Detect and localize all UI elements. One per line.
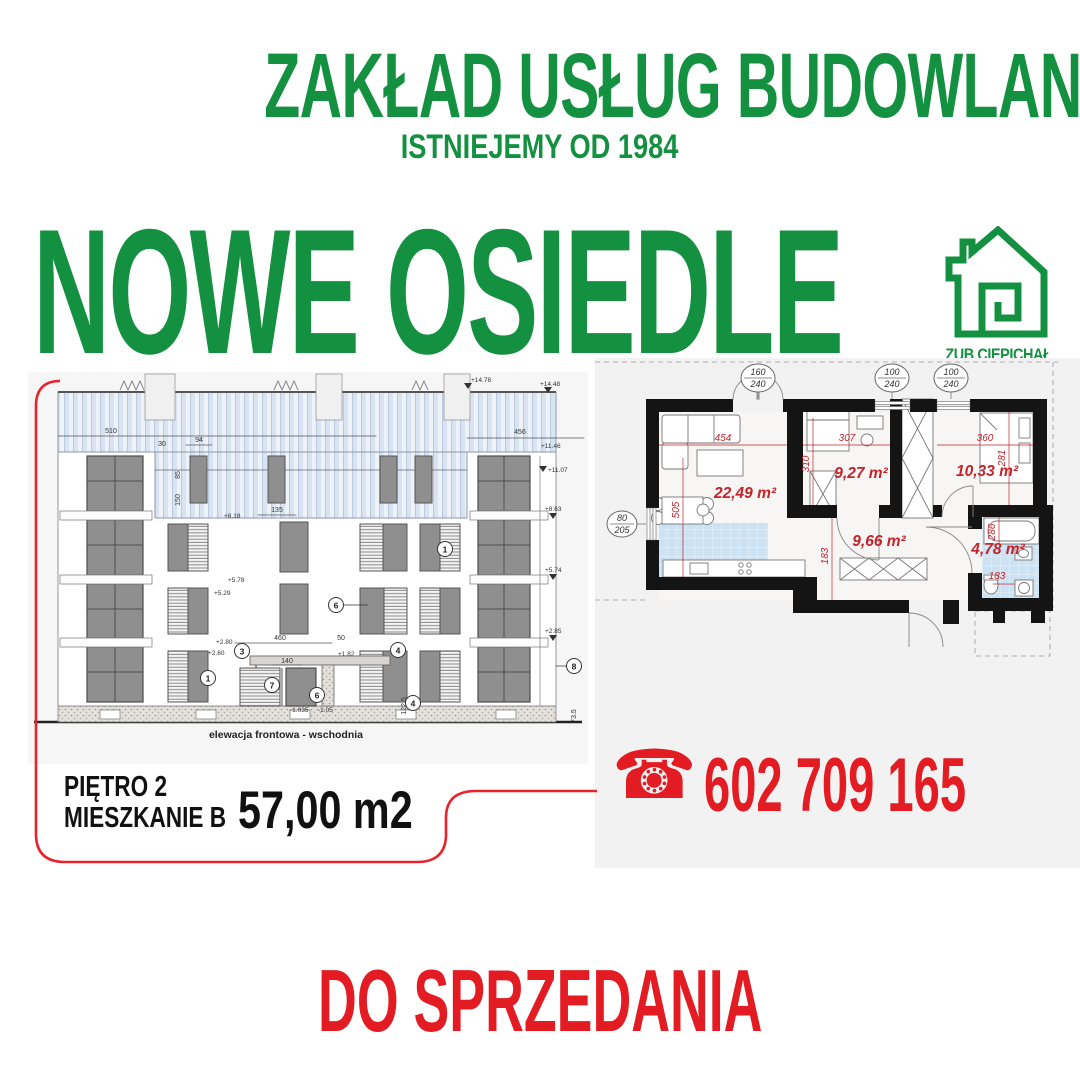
company-title-text: ZAKŁAD USŁUG BUDOWLANYCH bbox=[264, 34, 1080, 139]
dim-460: 460 bbox=[274, 635, 286, 642]
level-11-07: +11.07 bbox=[548, 467, 568, 474]
level-11-46: +11.46 bbox=[541, 443, 561, 450]
company-logo: ZUB CIEPICHAŁ bbox=[936, 226, 1060, 365]
svg-text:240: 240 bbox=[749, 379, 765, 389]
svg-text:6: 6 bbox=[334, 601, 339, 611]
svg-text:205: 205 bbox=[613, 525, 630, 535]
svg-text:307: 307 bbox=[839, 433, 856, 444]
dim-456: 456 bbox=[514, 429, 526, 436]
level-2-60: +2.60 bbox=[208, 650, 225, 657]
svg-text:286: 286 bbox=[987, 523, 998, 541]
area-bedroom1: 9,27 m² bbox=[834, 465, 888, 482]
house-outline-icon bbox=[936, 226, 1060, 338]
svg-text:7: 7 bbox=[270, 681, 275, 691]
svg-text:3: 3 bbox=[240, 647, 245, 657]
level-1-82: +1.82 bbox=[338, 651, 355, 658]
level-8-63: +8.63 bbox=[545, 506, 562, 513]
hero-title-text: NOWE OSIEDLE bbox=[33, 203, 842, 381]
floorplan-drawing: 454 307 360 310 281 505 183 286 183 22,4… bbox=[595, 358, 1080, 668]
elevation-caption: elewacja frontowa - wschodnia bbox=[209, 729, 363, 741]
footer-status: DO SPRZEDANIA bbox=[0, 950, 1080, 1052]
dim-140: 140 bbox=[281, 658, 293, 665]
svg-text:6: 6 bbox=[315, 691, 320, 701]
svg-text:4: 4 bbox=[396, 646, 401, 656]
svg-text:454: 454 bbox=[715, 433, 732, 444]
area-bedroom2: 10,33 m² bbox=[956, 463, 1019, 480]
svg-text:183: 183 bbox=[820, 547, 831, 564]
level-5-74: +5.74 bbox=[545, 567, 562, 574]
level-5-29: +5.29 bbox=[214, 590, 231, 597]
telephone-icon: ☎ bbox=[612, 736, 697, 815]
elevation-panel: 510 30 94 85 150 456 135 460 50 140 122.… bbox=[28, 372, 588, 764]
level-8-18: +8.18 bbox=[224, 513, 241, 520]
level-m1-05: -1.05 bbox=[318, 707, 333, 714]
svg-text:8: 8 bbox=[572, 662, 577, 672]
dim-150: 150 bbox=[175, 494, 182, 506]
svg-text:310: 310 bbox=[801, 455, 812, 472]
area-living: 22,49 m² bbox=[713, 485, 777, 502]
svg-text:1: 1 bbox=[443, 545, 448, 555]
dim-85: 85 bbox=[175, 471, 182, 479]
svg-text:240: 240 bbox=[942, 379, 958, 389]
svg-text:1: 1 bbox=[206, 674, 211, 684]
dim-510: 510 bbox=[105, 428, 117, 435]
svg-text:505: 505 bbox=[671, 501, 682, 518]
listing-unit: MIESZKANIE B bbox=[64, 803, 226, 834]
dim-94: 94 bbox=[195, 437, 203, 444]
svg-text:80: 80 bbox=[617, 513, 627, 523]
phone-number[interactable]: 602 709 165 bbox=[704, 742, 1080, 829]
level-2-80: +2.80 bbox=[216, 639, 233, 646]
dim-50: 50 bbox=[337, 635, 345, 642]
dim-135: 135 bbox=[271, 507, 283, 514]
level-5-78: +5.78 bbox=[228, 577, 245, 584]
company-since-text: ISTNIEJEMY OD 1984 bbox=[401, 128, 679, 167]
hero-title: NOWE OSIEDLE bbox=[33, 203, 1080, 381]
company-title: ZAKŁAD USŁUG BUDOWLANYCH bbox=[0, 34, 1080, 139]
svg-text:100: 100 bbox=[943, 367, 958, 377]
level-14-48: +14.48 bbox=[540, 381, 560, 388]
svg-text:360: 360 bbox=[977, 433, 994, 444]
area-bath: 4,78 m² bbox=[970, 541, 1025, 558]
listing-floor: PIĘTRO 2 bbox=[64, 772, 167, 803]
level-2-85: +2.85 bbox=[545, 628, 562, 635]
poster: ZAKŁAD USŁUG BUDOWLANYCH ISTNIEJEMY OD 1… bbox=[0, 0, 1080, 1080]
elevation-drawing: 510 30 94 85 150 456 135 460 50 140 122.… bbox=[28, 372, 588, 764]
dim-30: 30 bbox=[158, 441, 166, 448]
svg-text:100: 100 bbox=[884, 367, 899, 377]
company-since: ISTNIEJEMY OD 1984 bbox=[0, 128, 1080, 167]
listing-area: 57,00 m2 bbox=[238, 780, 462, 841]
level-m1-035: -1.035 bbox=[290, 707, 309, 714]
svg-text:183: 183 bbox=[989, 571, 1006, 582]
svg-text:240: 240 bbox=[883, 379, 899, 389]
area-hall: 9,66 m² bbox=[852, 533, 906, 550]
level-14-78: +14.78 bbox=[471, 377, 491, 384]
dim-73-5: 73.5 bbox=[571, 709, 578, 723]
svg-text:4: 4 bbox=[411, 699, 416, 709]
svg-text:160: 160 bbox=[750, 367, 765, 377]
elevation-facade bbox=[34, 374, 582, 722]
